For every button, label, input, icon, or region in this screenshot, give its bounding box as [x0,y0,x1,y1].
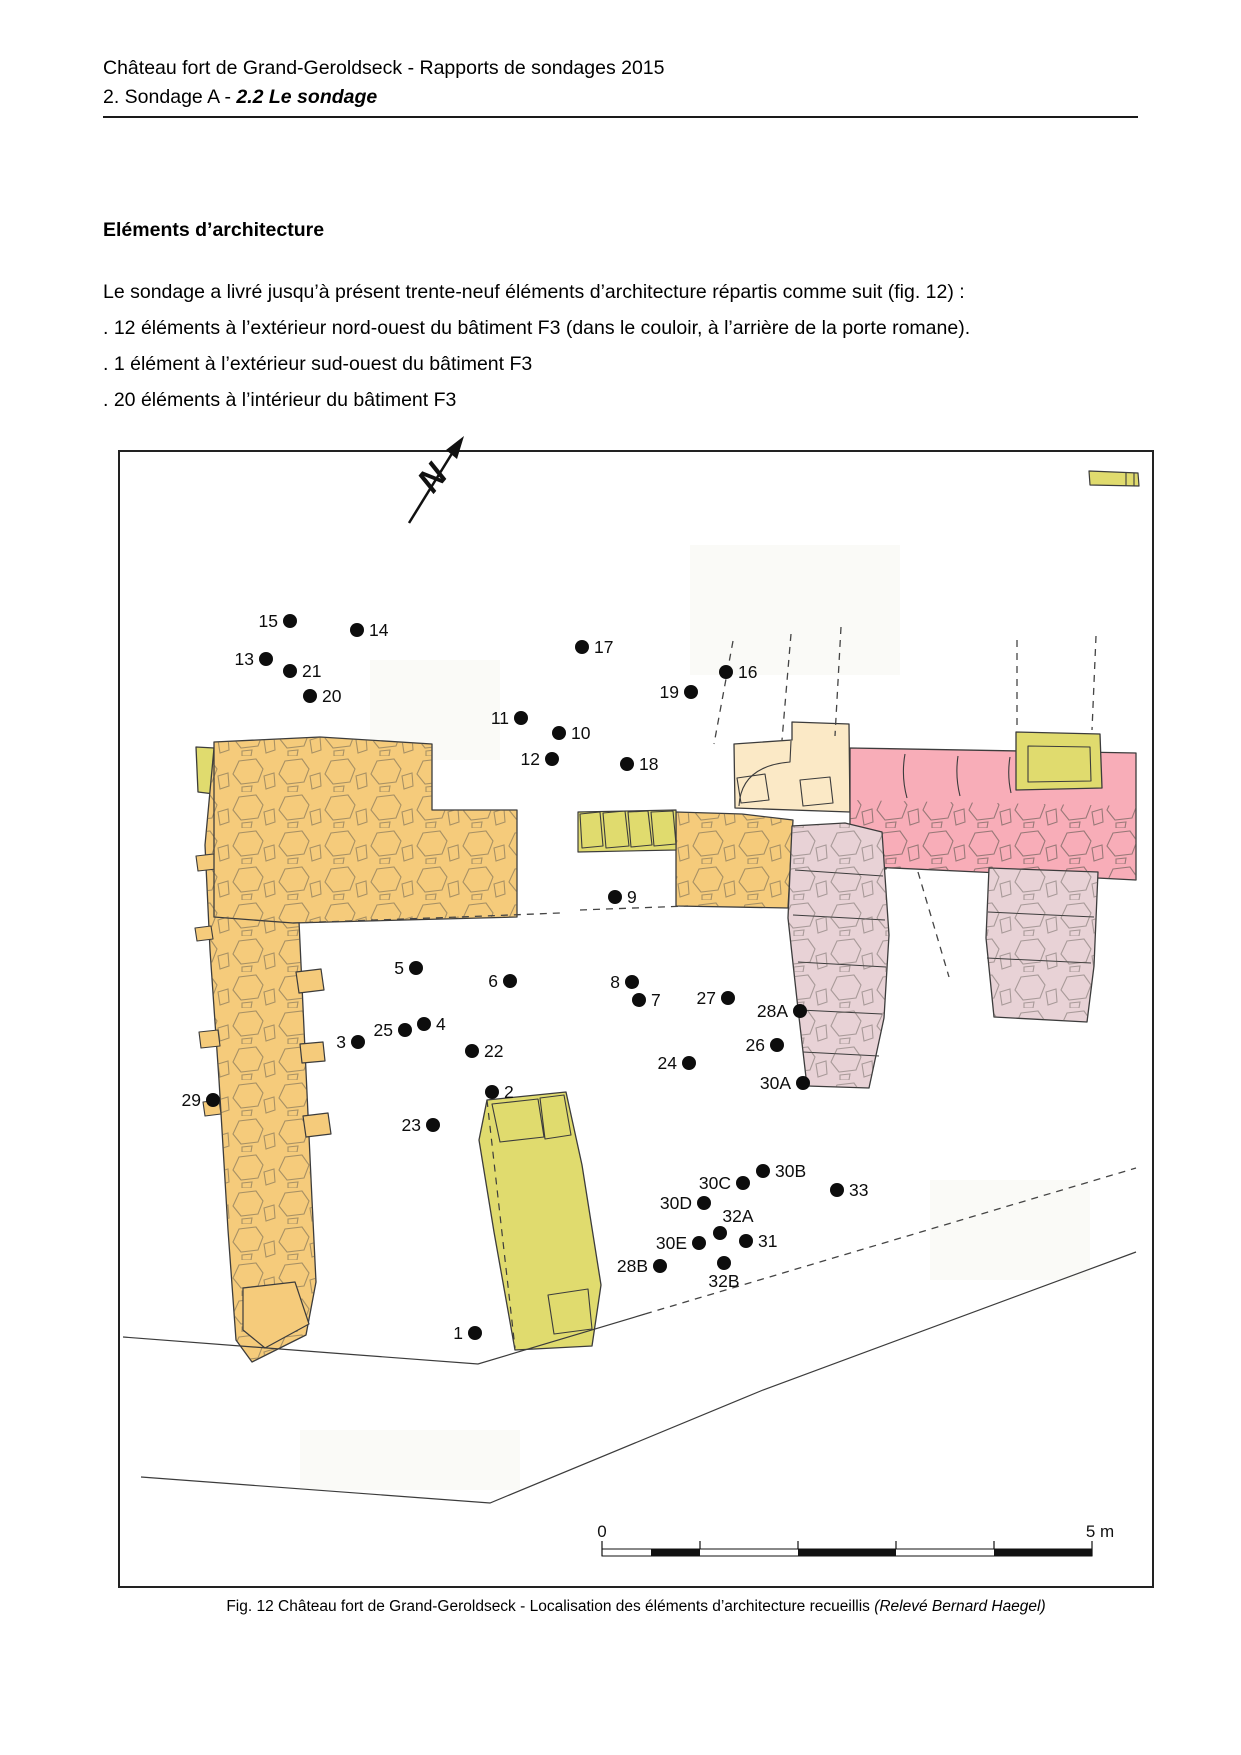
find-point-marker [796,1076,810,1090]
find-point-label: 20 [322,686,342,706]
find-point-label: 30E [656,1233,687,1253]
find-point-marker [632,993,646,1007]
find-point-marker [653,1259,667,1273]
mauve-wall-east [986,868,1098,1022]
find-point-label: 23 [402,1115,421,1135]
find-point-marker [206,1093,220,1107]
lime-blocks-gap [578,810,676,852]
find-point-label: 32B [708,1271,739,1291]
find-point-label: 27 [697,988,716,1008]
find-point-marker [259,652,273,666]
find-point-label: 2 [504,1082,514,1102]
find-point-label: 31 [758,1231,777,1251]
find-point-label: 17 [594,637,613,657]
find-point-label: 10 [571,723,591,743]
document-page: Château fort de Grand-Geroldseck - Rappo… [0,0,1241,1755]
site-plan-figure: N 0 5 m 12345678910111213141516171819202… [0,0,1241,1755]
find-point-marker [739,1234,753,1248]
find-point-marker [303,689,317,703]
find-point-marker [398,1023,412,1037]
figure-caption: Fig. 12 Château fort de Grand-Geroldseck… [119,1598,1153,1616]
find-point-label: 29 [182,1090,201,1110]
find-point-label: 16 [738,662,757,682]
find-point-label: 4 [436,1014,446,1034]
find-point-marker [713,1226,727,1240]
find-point-marker [736,1176,750,1190]
find-point-label: 1 [453,1323,463,1343]
find-point-marker [770,1038,784,1052]
scale-zero-label: 0 [597,1522,606,1541]
find-point-marker [721,991,735,1005]
find-point-marker [682,1056,696,1070]
find-point-marker [417,1017,431,1031]
find-point-marker [409,961,423,975]
find-point-label: 32A [722,1206,753,1226]
find-point-marker [830,1183,844,1197]
lime-bar-top-right [1089,471,1139,486]
find-point-marker [426,1118,440,1132]
find-point-label: 7 [651,990,661,1010]
find-point-label: 13 [235,649,254,669]
find-point-label: 30B [775,1161,806,1181]
find-point-label: 8 [610,972,620,992]
find-point-marker [684,685,698,699]
find-point-marker [756,1164,770,1178]
find-point-marker [283,614,297,628]
find-point-label: 19 [660,682,679,702]
find-point-label: 14 [369,620,389,640]
find-point-label: 30A [760,1073,791,1093]
caption-text: Fig. 12 Château fort de Grand-Geroldseck… [226,1598,874,1615]
find-point-marker [503,974,517,988]
find-point-label: 18 [639,754,658,774]
find-point-label: 30D [660,1193,692,1213]
lime-structure-northeast [1016,732,1102,790]
find-point-marker [575,640,589,654]
find-point-label: 22 [484,1041,503,1061]
find-point-marker [719,665,733,679]
scale-max-label: 5 m [1086,1522,1114,1541]
find-point-marker [514,711,528,725]
find-point-label: 25 [374,1020,393,1040]
find-point-marker [608,890,622,904]
find-point-marker [465,1044,479,1058]
find-point-marker [545,752,559,766]
find-point-marker [697,1196,711,1210]
mauve-wall-centre [788,823,889,1088]
find-point-label: 21 [302,661,321,681]
find-point-label: 12 [521,749,540,769]
find-point-label: 26 [746,1035,765,1055]
find-point-label: 28B [617,1256,648,1276]
find-point-label: 9 [627,887,637,907]
find-point-label: 28A [757,1001,788,1021]
find-point-marker [692,1236,706,1250]
find-point-label: 11 [491,708,509,728]
find-point-label: 5 [394,958,404,978]
find-point-label: 3 [336,1032,346,1052]
find-point-marker [468,1326,482,1340]
find-point-label: 33 [849,1180,868,1200]
find-point-marker [625,975,639,989]
find-point-marker [620,757,634,771]
find-point-marker [552,726,566,740]
find-point-marker [283,664,297,678]
find-point-label: 24 [658,1053,678,1073]
find-point-marker [717,1256,731,1270]
find-point-label: 6 [488,971,498,991]
find-point-label: 30C [699,1173,731,1193]
find-point-marker [485,1085,499,1099]
find-point-marker [793,1004,807,1018]
caption-credit: (Relevé Bernard Haegel) [874,1598,1045,1615]
find-point-label: 15 [259,611,278,631]
find-point-marker [351,1035,365,1049]
find-point-marker [350,623,364,637]
